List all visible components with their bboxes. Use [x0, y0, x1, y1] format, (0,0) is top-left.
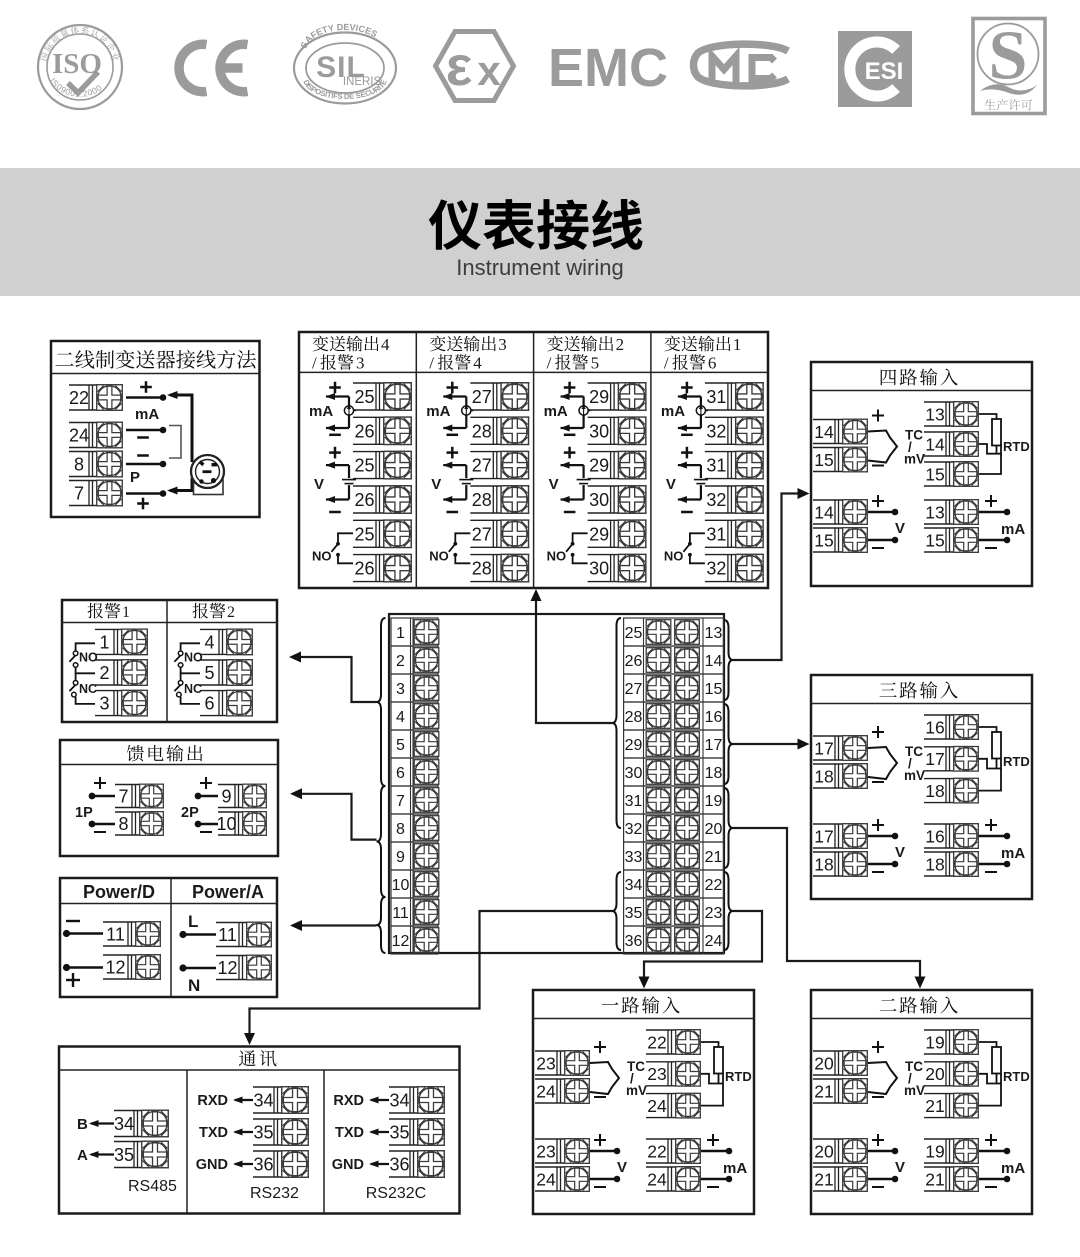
svg-text:23: 23 [536, 1053, 555, 1073]
svg-text:7: 7 [118, 787, 128, 807]
svg-text:4: 4 [381, 335, 390, 354]
svg-text:21: 21 [705, 849, 723, 866]
svg-text:27: 27 [625, 681, 643, 698]
svg-text:28: 28 [472, 490, 492, 510]
svg-text:14: 14 [814, 422, 834, 442]
svg-text:20: 20 [814, 1141, 834, 1161]
svg-text:4: 4 [204, 632, 214, 652]
svg-text:mA: mA [1001, 1160, 1025, 1177]
svg-text:18: 18 [705, 765, 723, 782]
svg-text:13: 13 [705, 625, 723, 642]
svg-text:5: 5 [204, 663, 214, 683]
svg-text:27: 27 [472, 456, 492, 476]
svg-text:mA: mA [135, 406, 159, 423]
svg-text:21: 21 [814, 1169, 833, 1189]
svg-text:15: 15 [814, 530, 833, 550]
svg-text:2P: 2P [181, 805, 199, 821]
svg-text:2: 2 [616, 335, 625, 354]
svg-text:3: 3 [356, 354, 365, 373]
svg-text:2: 2 [99, 663, 109, 683]
svg-text:Power/D: Power/D [83, 882, 155, 902]
svg-text:3: 3 [498, 335, 507, 354]
svg-text:NC: NC [184, 682, 202, 696]
svg-text:24: 24 [647, 1096, 667, 1116]
svg-text:36: 36 [625, 933, 643, 950]
svg-text:30: 30 [589, 559, 609, 579]
svg-text:35: 35 [389, 1123, 409, 1143]
svg-text:2: 2 [396, 653, 405, 670]
svg-text:GND: GND [332, 1157, 364, 1173]
svg-text:NO: NO [184, 651, 203, 665]
svg-text:6: 6 [204, 694, 214, 714]
svg-text:29: 29 [589, 387, 609, 407]
svg-text:RXD: RXD [197, 1093, 228, 1109]
svg-text:/: / [429, 354, 434, 373]
svg-text:26: 26 [354, 559, 374, 579]
svg-text:1P: 1P [75, 805, 93, 821]
svg-text:17: 17 [925, 749, 944, 769]
svg-text:28: 28 [625, 709, 643, 726]
svg-text:5: 5 [591, 354, 600, 373]
svg-text:1: 1 [396, 625, 405, 642]
svg-text:34: 34 [625, 877, 643, 894]
svg-text:mA: mA [426, 403, 450, 420]
svg-text:1: 1 [733, 335, 742, 354]
svg-text:P: P [130, 469, 140, 486]
svg-text:12: 12 [105, 958, 125, 978]
svg-text:RTD: RTD [725, 1069, 752, 1084]
svg-text:7: 7 [74, 484, 84, 504]
svg-text:mV: mV [904, 1083, 925, 1098]
svg-text:A: A [77, 1147, 88, 1164]
svg-text:24: 24 [536, 1081, 556, 1101]
svg-text:34: 34 [114, 1114, 134, 1134]
svg-text:ε: ε [446, 34, 473, 97]
svg-text:mA: mA [1001, 521, 1025, 538]
svg-text:mA: mA [309, 403, 333, 420]
svg-text:V: V [895, 1159, 905, 1176]
svg-text:35: 35 [625, 905, 643, 922]
svg-text:25: 25 [354, 524, 374, 544]
svg-text:31: 31 [706, 387, 726, 407]
svg-text:NC: NC [79, 682, 97, 696]
svg-text:V: V [895, 520, 905, 537]
svg-text:16: 16 [925, 717, 944, 737]
svg-text:22: 22 [647, 1141, 666, 1161]
svg-text:8: 8 [74, 455, 84, 475]
svg-text:14: 14 [925, 434, 945, 454]
svg-text:24: 24 [536, 1169, 556, 1189]
svg-text:1: 1 [122, 604, 130, 621]
svg-text:15: 15 [705, 681, 723, 698]
svg-text:14: 14 [705, 653, 723, 670]
svg-text:30: 30 [589, 490, 609, 510]
svg-text:9: 9 [221, 787, 231, 807]
svg-text:NO: NO [547, 548, 567, 563]
svg-text:5: 5 [396, 737, 405, 754]
svg-text:7: 7 [396, 793, 405, 810]
svg-text:10: 10 [216, 814, 236, 834]
svg-text:23: 23 [705, 905, 723, 922]
svg-text:11: 11 [218, 925, 237, 945]
svg-text:18: 18 [814, 766, 833, 786]
svg-text:25: 25 [625, 625, 643, 642]
svg-text:25: 25 [354, 387, 374, 407]
svg-text:V: V [314, 476, 324, 493]
svg-text:12: 12 [217, 958, 237, 978]
svg-text:31: 31 [625, 793, 643, 810]
svg-text:RS485: RS485 [128, 1178, 177, 1195]
svg-text:24: 24 [69, 426, 89, 446]
svg-text:34: 34 [389, 1091, 409, 1111]
svg-text:S: S [989, 18, 1028, 95]
svg-text:20: 20 [925, 1064, 945, 1084]
svg-text:26: 26 [354, 421, 374, 441]
svg-text:18: 18 [925, 854, 944, 874]
svg-text:4: 4 [473, 354, 482, 373]
svg-text:/: / [312, 354, 317, 373]
svg-text:/: / [664, 354, 669, 373]
svg-text:24: 24 [647, 1169, 667, 1189]
svg-text:GND: GND [196, 1157, 228, 1173]
svg-text:18: 18 [925, 781, 944, 801]
svg-text:31: 31 [706, 456, 726, 476]
svg-text:27: 27 [472, 387, 492, 407]
svg-text:Power/A: Power/A [192, 882, 264, 902]
svg-text:22: 22 [69, 388, 89, 408]
svg-text:31: 31 [706, 524, 726, 544]
svg-text:16: 16 [925, 826, 944, 846]
svg-text:12: 12 [392, 933, 410, 950]
svg-text:2: 2 [227, 604, 235, 621]
svg-text:V: V [431, 476, 441, 493]
svg-text:3: 3 [396, 681, 405, 698]
svg-text:20: 20 [814, 1053, 834, 1073]
svg-text:8: 8 [118, 814, 128, 834]
svg-text:33: 33 [625, 849, 643, 866]
svg-text:28: 28 [472, 559, 492, 579]
svg-text:mA: mA [661, 403, 685, 420]
svg-text:4: 4 [396, 709, 405, 726]
svg-text:L: L [188, 912, 198, 931]
svg-text:26: 26 [354, 490, 374, 510]
svg-text:8: 8 [396, 821, 405, 838]
svg-text:34: 34 [253, 1091, 273, 1111]
svg-text:9: 9 [396, 849, 405, 866]
svg-text:1: 1 [99, 632, 109, 652]
svg-text:29: 29 [589, 456, 609, 476]
svg-text:mA: mA [544, 403, 568, 420]
svg-text:TXD: TXD [199, 1125, 228, 1141]
svg-text:32: 32 [706, 421, 726, 441]
svg-text:x: x [477, 47, 501, 94]
svg-text:mA: mA [1001, 845, 1025, 862]
svg-text:28: 28 [472, 421, 492, 441]
svg-text:25: 25 [354, 456, 374, 476]
svg-text:21: 21 [925, 1096, 944, 1116]
svg-text:RS232: RS232 [250, 1185, 299, 1202]
svg-text:NO: NO [79, 651, 98, 665]
svg-text:mV: mV [904, 768, 925, 783]
svg-text:15: 15 [925, 530, 944, 550]
svg-text:10: 10 [392, 877, 410, 894]
svg-text:24: 24 [705, 933, 723, 950]
svg-text:14: 14 [814, 502, 834, 522]
svg-text:13: 13 [925, 404, 944, 424]
svg-text:15: 15 [814, 450, 833, 470]
svg-text:21: 21 [925, 1169, 944, 1189]
svg-text:19: 19 [925, 1141, 944, 1161]
svg-text:20: 20 [705, 821, 723, 838]
svg-text:17: 17 [705, 737, 723, 754]
svg-text:3: 3 [99, 694, 109, 714]
svg-text:15: 15 [925, 464, 944, 484]
svg-text:RXD: RXD [333, 1093, 364, 1109]
svg-text:32: 32 [706, 490, 726, 510]
svg-text:16: 16 [705, 709, 723, 726]
svg-text:Instrument wiring: Instrument wiring [456, 255, 624, 280]
svg-text:V: V [617, 1159, 627, 1176]
svg-text:29: 29 [589, 524, 609, 544]
svg-text:RS232C: RS232C [366, 1185, 426, 1202]
svg-text:21: 21 [814, 1081, 833, 1101]
svg-text:6: 6 [396, 765, 405, 782]
svg-text:mA: mA [723, 1160, 747, 1177]
svg-text:23: 23 [647, 1064, 666, 1084]
svg-text:32: 32 [706, 559, 726, 579]
svg-text:23: 23 [536, 1141, 555, 1161]
svg-text:19: 19 [925, 1032, 944, 1052]
svg-text:18: 18 [814, 854, 833, 874]
svg-text:V: V [666, 476, 676, 493]
svg-text:B: B [77, 1116, 88, 1133]
svg-text:ESI: ESI [865, 58, 904, 85]
svg-text:22: 22 [647, 1032, 666, 1052]
svg-text:mV: mV [904, 452, 925, 467]
svg-text:19: 19 [705, 793, 723, 810]
svg-text:36: 36 [253, 1155, 273, 1175]
svg-text:29: 29 [625, 737, 643, 754]
svg-text:RTD: RTD [1003, 754, 1030, 769]
svg-text:35: 35 [114, 1145, 134, 1165]
svg-text:13: 13 [925, 502, 944, 522]
svg-text:/: / [547, 354, 552, 373]
svg-text:EMC: EMC [548, 38, 668, 98]
svg-text:NO: NO [664, 548, 684, 563]
svg-text:RTD: RTD [1003, 439, 1030, 454]
svg-text:11: 11 [106, 925, 125, 945]
svg-text:17: 17 [814, 826, 833, 846]
svg-text:36: 36 [389, 1155, 409, 1175]
svg-text:TXD: TXD [335, 1125, 364, 1141]
svg-text:NO: NO [312, 548, 332, 563]
svg-text:30: 30 [589, 421, 609, 441]
svg-text:V: V [549, 476, 559, 493]
svg-text:22: 22 [705, 877, 723, 894]
svg-text:30: 30 [625, 765, 643, 782]
svg-text:35: 35 [253, 1123, 273, 1143]
svg-text:11: 11 [392, 905, 409, 922]
svg-text:N: N [188, 976, 200, 995]
svg-text:27: 27 [472, 524, 492, 544]
svg-text:mV: mV [626, 1083, 647, 1098]
svg-text:32: 32 [625, 821, 643, 838]
svg-text:6: 6 [708, 354, 717, 373]
svg-text:17: 17 [814, 738, 833, 758]
svg-text:RTD: RTD [1003, 1069, 1030, 1084]
svg-text:26: 26 [625, 653, 643, 670]
svg-text:V: V [895, 844, 905, 861]
svg-text:NO: NO [429, 548, 449, 563]
